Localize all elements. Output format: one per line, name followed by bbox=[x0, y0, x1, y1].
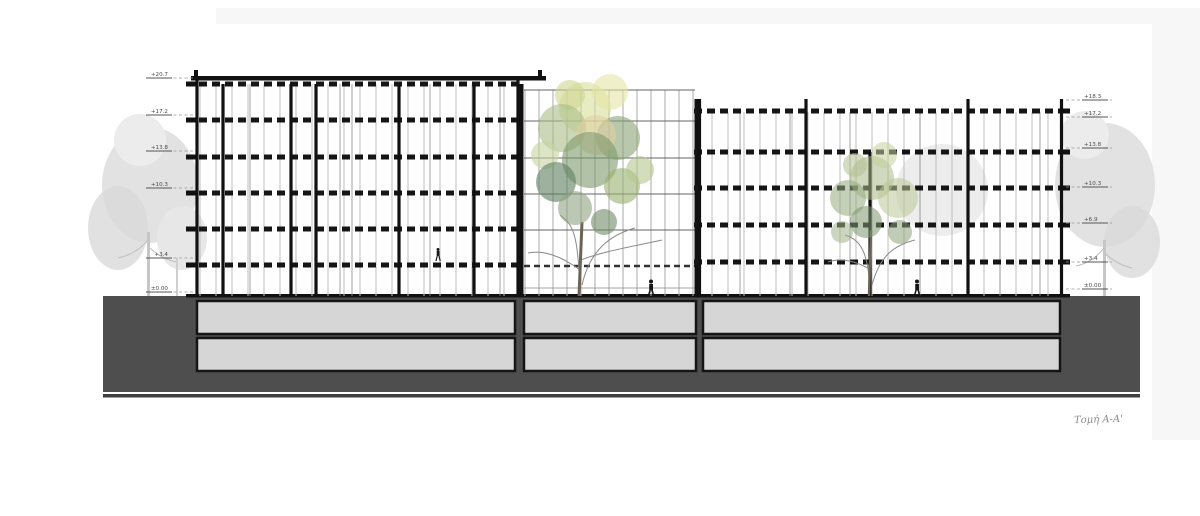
elevation-label: +3.4 bbox=[154, 252, 168, 258]
basement-row1-middle bbox=[524, 301, 696, 334]
elevation-label: +10.3 bbox=[151, 182, 169, 188]
page-margin-right bbox=[1152, 24, 1200, 440]
elevation-label: +6.9 bbox=[1084, 217, 1098, 223]
tree-trunk bbox=[147, 232, 150, 296]
basement-row2-left bbox=[197, 338, 515, 371]
roof-slab bbox=[191, 76, 546, 81]
section-drawing: +20.7 +17.2 +13.8 +10.3 +3.4 ±0.00 +18.3… bbox=[0, 0, 1200, 516]
background-tree-right bbox=[1055, 111, 1160, 296]
tree-trunk bbox=[176, 258, 178, 296]
elevation-label: +3.4 bbox=[1084, 256, 1098, 262]
elevation-label: ±0.00 bbox=[1084, 283, 1102, 289]
elevation-label: +17.2 bbox=[1084, 111, 1101, 117]
architectural-section-sheet: +20.7 +17.2 +13.8 +10.3 +3.4 ±0.00 +18.3… bbox=[0, 0, 1200, 516]
elevation-label: +10.3 bbox=[1084, 181, 1102, 187]
basement-row2-middle bbox=[524, 338, 696, 371]
background-tree-left bbox=[88, 114, 207, 296]
ground-baseline bbox=[103, 394, 1140, 398]
elevation-label: +13.8 bbox=[1084, 142, 1102, 148]
section-caption: Τομή Α-Α' bbox=[1074, 413, 1164, 426]
elevation-label: +18.3 bbox=[1084, 94, 1102, 100]
elevation-label: +13.8 bbox=[151, 145, 169, 151]
basement-row1-right bbox=[703, 301, 1060, 334]
basement-row2-right bbox=[703, 338, 1060, 371]
left-building bbox=[186, 70, 546, 296]
elevation-label: +17.2 bbox=[151, 109, 168, 115]
page-margin-top bbox=[216, 8, 1200, 24]
basement-row1-left bbox=[197, 301, 515, 334]
elevation-label: ±0.00 bbox=[151, 286, 169, 292]
elevation-label: +20.7 bbox=[151, 72, 169, 78]
